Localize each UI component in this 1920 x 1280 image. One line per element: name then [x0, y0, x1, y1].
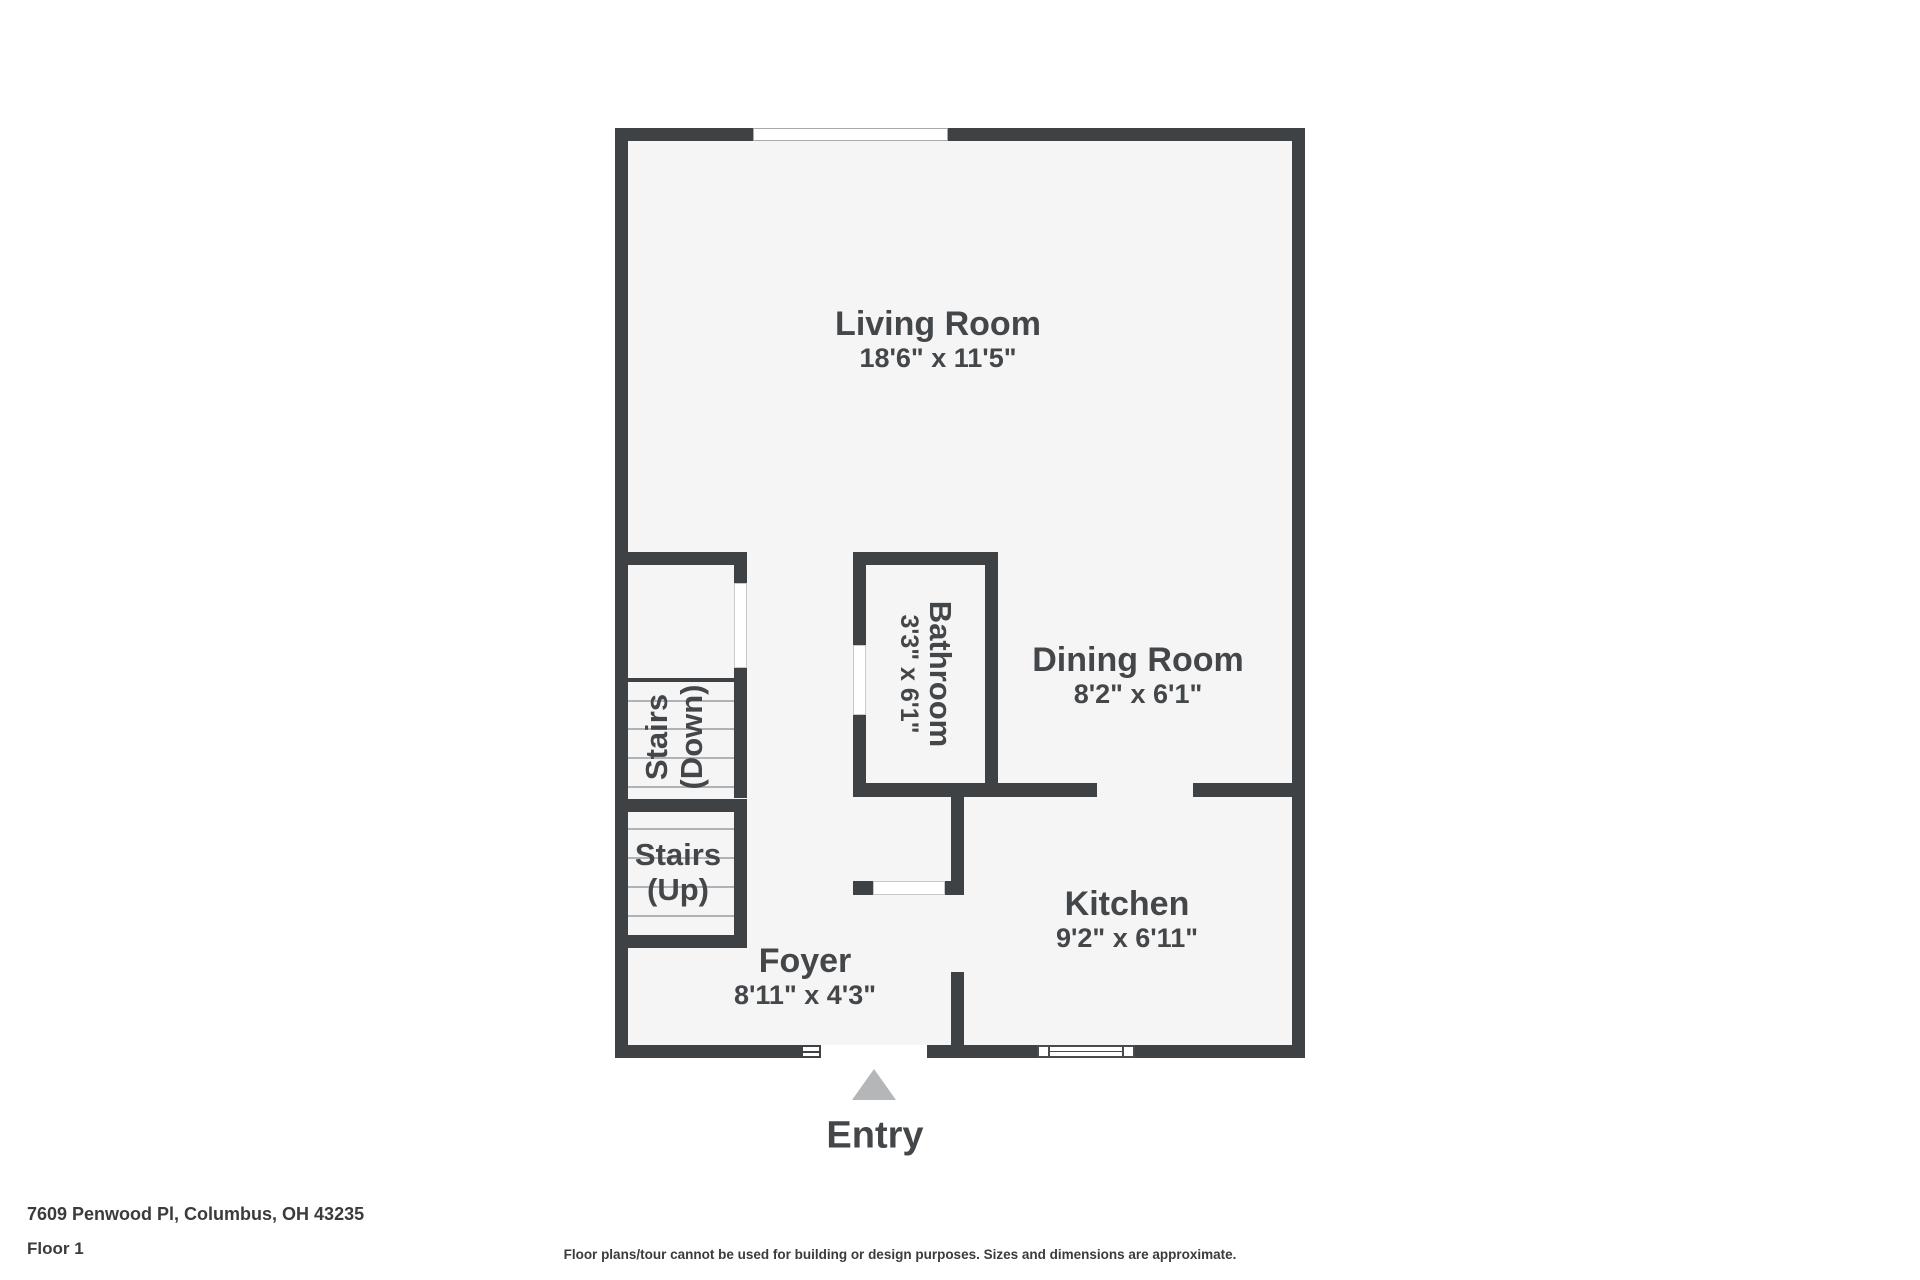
entry-arrow-icon — [852, 1069, 896, 1100]
room-label-stairs-up: Stairs (Up) — [635, 837, 721, 907]
stair-landing-doorway — [734, 583, 747, 668]
bathroom-right-wall — [985, 565, 998, 797]
dining-room-dims: 8'2" x 6'1" — [1032, 679, 1244, 710]
floor-plan-page: Living Room 18'6" x 11'5" Dining Room 8'… — [0, 0, 1920, 1280]
outer-wall-right — [1292, 128, 1305, 1058]
entry-door-icon — [801, 1045, 821, 1058]
stair-landing-top-wall — [615, 552, 747, 565]
bathroom-doorway — [853, 645, 866, 715]
room-label-stairs-down: Stairs (Down) — [639, 684, 709, 789]
room-label-living: Living Room 18'6" x 11'5" — [835, 306, 1041, 374]
outer-wall-left — [615, 128, 628, 1058]
stairs-up-bottom-wall — [615, 935, 747, 948]
dining-kitchen-divider-left — [853, 783, 1097, 797]
floor-area — [615, 128, 1305, 1058]
closet-opening — [873, 881, 945, 895]
kitchen-window-post-right — [1122, 1047, 1124, 1056]
kitchen-dims: 9'2" x 6'11" — [1056, 923, 1198, 954]
kitchen-name: Kitchen — [1056, 886, 1198, 923]
bathroom-top-wall — [853, 552, 998, 565]
footer-floor-label: Floor 1 — [27, 1239, 84, 1259]
living-room-dims: 18'6" x 11'5" — [835, 343, 1041, 374]
living-room-name: Living Room — [835, 306, 1041, 343]
bathroom-dims: 3'3" x 6'1" — [894, 601, 923, 747]
footer-address: 7609 Penwood Pl, Columbus, OH 43235 — [27, 1204, 364, 1225]
bathroom-name: Bathroom — [923, 601, 958, 747]
room-label-bathroom: Bathroom 3'3" x 6'1" — [894, 601, 958, 747]
tread-line — [628, 828, 734, 830]
room-label-foyer: Foyer 8'11" x 4'3" — [734, 943, 876, 1011]
stairs-down-line1: Stairs — [639, 684, 674, 789]
stairs-down-line2: (Down) — [674, 684, 709, 789]
foyer-dims: 8'11" x 4'3" — [734, 980, 876, 1011]
outer-wall-top — [615, 128, 1305, 141]
stairs-up-right-wall — [734, 812, 747, 948]
tread-line — [628, 915, 734, 917]
footer-disclaimer: Floor plans/tour cannot be used for buil… — [564, 1247, 1237, 1262]
entry-opening — [820, 1045, 927, 1058]
kitchen-window — [1037, 1045, 1135, 1058]
entry-label: Entry — [826, 1115, 923, 1158]
dining-room-name: Dining Room — [1032, 642, 1244, 679]
stairs-up-line2: (Up) — [635, 872, 721, 907]
living-room-window — [753, 128, 948, 141]
stairs-up-line1: Stairs — [635, 837, 721, 872]
dining-kitchen-divider-right — [1193, 783, 1305, 797]
foyer-kitchen-divider — [951, 972, 964, 1058]
room-label-dining: Dining Room 8'2" x 6'1" — [1032, 642, 1244, 710]
room-label-kitchen: Kitchen 9'2" x 6'11" — [1056, 886, 1198, 954]
kitchen-window-midline — [1050, 1051, 1122, 1052]
stairs-mid-wall — [615, 799, 747, 812]
stair-edge-line — [628, 678, 734, 682]
foyer-name: Foyer — [734, 943, 876, 980]
